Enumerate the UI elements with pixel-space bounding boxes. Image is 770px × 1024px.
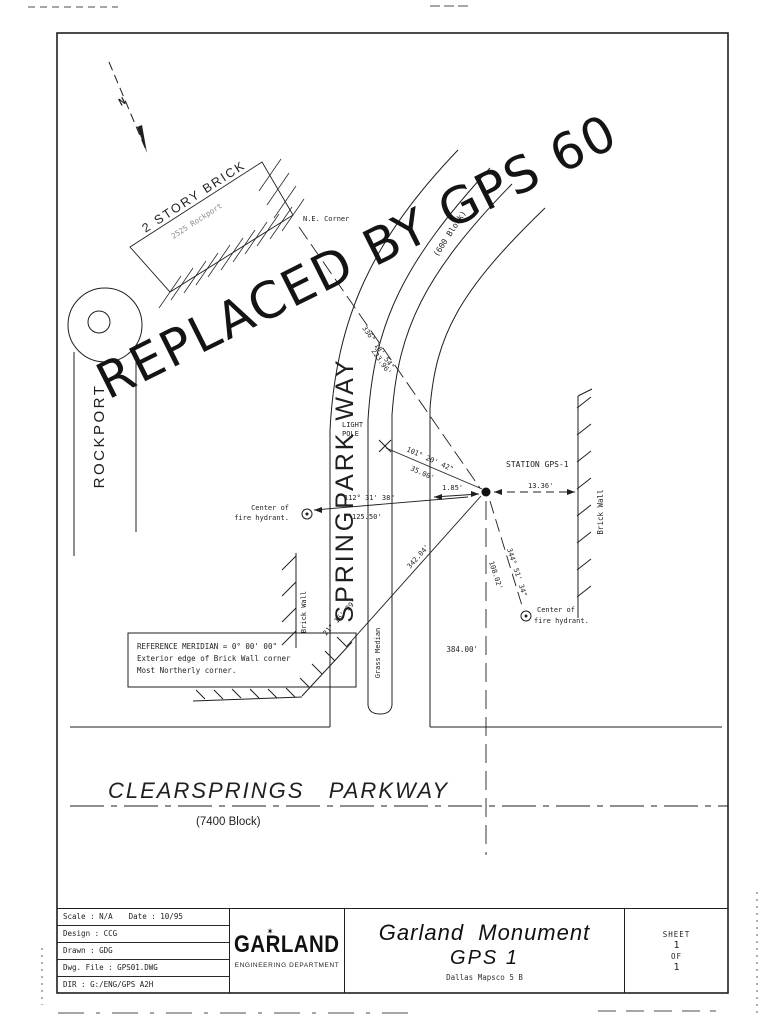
grass-median-label: Grass Median [374, 628, 382, 679]
site-plan-canvas: N 2 STORY BRICK 2525 Rockport N.E. Corne… [0, 0, 770, 1024]
sheet-of-label: OF [671, 952, 682, 961]
logo-department: ENGINEERING DEPARTMENT [235, 962, 340, 969]
reference-note-line3: Most Northerly corner. [137, 666, 236, 675]
meas-east: 13.36' [528, 482, 553, 490]
sheet-number: 1 [673, 940, 679, 951]
drawing-title-line2: GPS 1 [450, 947, 519, 970]
meas-offset: 1.85' [442, 484, 463, 492]
garland-logo-text: GARLAND ✶ [234, 931, 340, 958]
agency-logo: GARLAND ✶ ENGINEERING DEPARTMENT [230, 909, 345, 993]
drawing-sheet: N 2 STORY BRICK 2525 Rockport N.E. Corne… [0, 0, 770, 1024]
drawn-value: Drawn : GDG [63, 943, 113, 959]
reference-note-line1: REFERENCE MERIDIAN = 0° 00' 00" [137, 642, 277, 651]
info-row-dir: DIR : G:/ENG/GPS A2H [57, 977, 229, 994]
meas-west-dist: 125.50' [352, 513, 382, 521]
hydrant-left-label-1: Center of [251, 504, 289, 512]
clearsprings-label: CLEARSPRINGS PARKWAY [108, 778, 449, 803]
info-row-drawn: Drawn : GDG [57, 943, 229, 960]
light-pole-icon [379, 440, 391, 452]
ne-corner-label: N.E. Corner [303, 215, 349, 223]
hydrant-right-label-1: Center of [537, 606, 575, 614]
reference-note-line2: Exterior edge of Brick Wall corner [137, 654, 291, 663]
info-row-design: Design : CCG [57, 926, 229, 943]
light-pole-label-1: LIGHT [342, 421, 364, 429]
design-value: Design : CCG [63, 926, 117, 942]
rockport-label: ROCKPORT [91, 384, 108, 489]
springpark-label: SPRINGPARK WAY [331, 357, 359, 622]
drawing-title: Garland Monument GPS 1 Dallas Mapsco 5 B [345, 909, 625, 993]
meas-south: 384.00' [446, 645, 478, 654]
meas-west-angle: 112° 31' 38" [344, 494, 395, 502]
hydrant-left-icon [302, 509, 312, 519]
dwg-file-value: Dwg. File : GPS01.DWG [63, 960, 158, 976]
star-icon: ✶ [267, 926, 274, 937]
meas-se-angle: 344° 51' 34" [505, 547, 528, 598]
meas-se-dist: 108.02' [487, 560, 504, 591]
sheet-total: 1 [673, 962, 679, 973]
hydrant-left-label-2: fire hydrant. [234, 514, 289, 522]
sheet-info: SHEET 1 OF 1 [625, 909, 728, 993]
station-marker-icon [482, 488, 491, 497]
left-wall-label: Brick Wall [300, 591, 308, 633]
right-brick-wall [577, 389, 592, 618]
scale-value: Scale : N/A [63, 909, 113, 925]
title-block: Scale : N/A Date : 10/95 Design : CCG Dr… [57, 908, 728, 993]
date-value: Date : 10/95 [129, 909, 183, 925]
clearsprings-block-label: (7400 Block) [196, 816, 261, 828]
info-row-file: Dwg. File : GPS01.DWG [57, 960, 229, 977]
right-wall-label: Brick Wall [596, 489, 605, 534]
title-block-info: Scale : N/A Date : 10/95 Design : CCG Dr… [57, 909, 230, 993]
north-arrow-icon [109, 62, 147, 153]
drawing-subtitle: Dallas Mapsco 5 B [446, 973, 523, 982]
sheet-label: SHEET [663, 930, 691, 939]
light-pole-label-2: POLE [342, 430, 359, 438]
info-row-scale-date: Scale : N/A Date : 10/95 [57, 909, 229, 926]
hydrant-right-label-2: fire hydrant. [534, 617, 589, 625]
hydrant-right-icon [521, 611, 531, 621]
dir-value: DIR : G:/ENG/GPS A2H [63, 977, 153, 994]
logo-wordmark: GARLAND [234, 931, 340, 957]
drawing-title-line1: Garland Monument [379, 920, 590, 946]
station-label: STATION GPS-1 [506, 460, 569, 469]
